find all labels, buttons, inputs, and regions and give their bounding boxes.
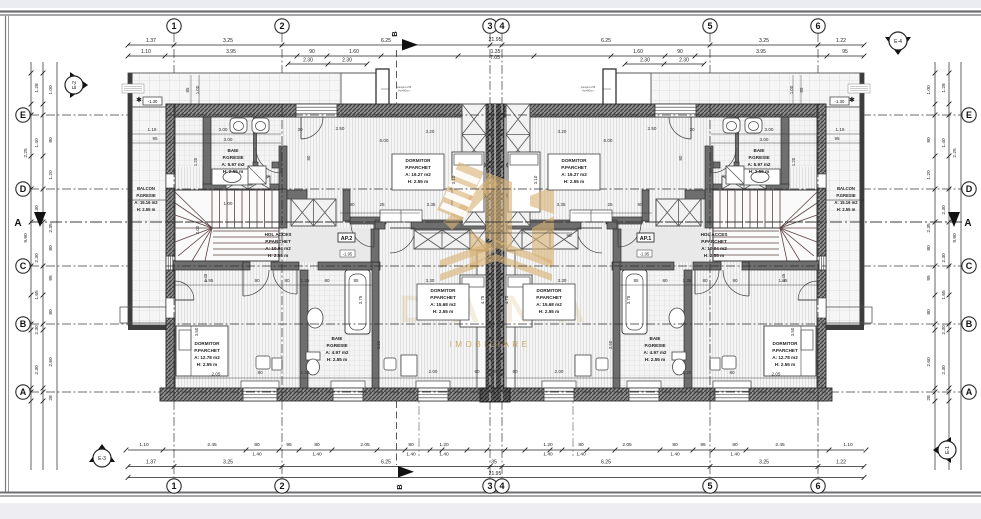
svg-text:95: 95 [152,136,158,141]
svg-text:3.95: 3.95 [756,49,766,55]
svg-text:2.00: 2.00 [429,369,438,374]
svg-text:2.00: 2.00 [555,369,564,374]
svg-text:H: 2.55 m: H: 2.55 m [645,357,665,362]
svg-text:1.40: 1.40 [312,451,322,457]
svg-text:A: A [14,218,21,229]
svg-text:80: 80 [662,278,668,283]
svg-text:90: 90 [637,202,643,207]
svg-text:2.35: 2.35 [926,223,932,233]
svg-text:A: 4.97 m2: A: 4.97 m2 [326,350,349,355]
svg-text:90: 90 [349,202,355,207]
svg-text:parapet c/45: parapet c/45 [581,85,596,89]
svg-text:3.50: 3.50 [194,327,199,336]
svg-text:2.05: 2.05 [772,372,781,377]
svg-text:1.20: 1.20 [543,442,553,448]
svg-text:2: 2 [279,21,284,31]
svg-text:P.GRESIE: P.GRESIE [644,343,665,348]
svg-text:80: 80 [926,245,932,251]
svg-text:P.GRESIE: P.GRESIE [136,193,155,198]
svg-text:3.35: 3.35 [427,202,436,207]
svg-text:80: 80 [284,278,290,283]
svg-text:1.00: 1.00 [926,85,932,95]
svg-text:80: 80 [926,309,932,315]
svg-text:80: 80 [408,442,414,448]
svg-text:1.19: 1.19 [148,127,157,132]
svg-text:4.75: 4.75 [480,295,485,304]
svg-text:H: 2.55 m: H: 2.55 m [564,179,584,184]
svg-text:6.25: 6.25 [381,38,391,44]
svg-text:DORMITOR: DORMITOR [406,158,432,163]
svg-text:85: 85 [633,278,639,283]
svg-text:3.30: 3.30 [426,278,435,283]
svg-text:85: 85 [799,87,804,92]
svg-text:A: 10.04 m2: A: 10.04 m2 [701,246,727,251]
svg-text:1.20: 1.20 [926,170,932,180]
svg-text:3.10: 3.10 [451,175,456,184]
svg-text:H: 2.55 m: H: 2.55 m [704,253,724,258]
svg-text:2.05: 2.05 [622,442,632,448]
svg-text:80: 80 [702,278,708,283]
svg-text:H: 2.55 m: H: 2.55 m [327,357,347,362]
svg-text:B: B [966,319,973,329]
svg-text:BALCON: BALCON [137,186,155,191]
svg-text:H: 2.55 m: H: 2.55 m [223,169,243,174]
svg-text:E-1: E-1 [945,446,951,454]
svg-text:A: A [966,387,973,397]
svg-text:1.45: 1.45 [203,273,208,282]
svg-text:HOL ACCES: HOL ACCES [265,232,292,237]
svg-text:5: 5 [707,21,712,31]
svg-text:1.45: 1.45 [781,273,786,282]
svg-text:A: A [20,387,27,397]
svg-text:-1.30: -1.30 [148,99,158,104]
svg-text:DORMITOR: DORMITOR [195,341,221,346]
svg-text:1.20: 1.20 [301,370,310,375]
svg-text:D: D [966,184,973,194]
svg-text:H: 2.55 m: H: 2.55 m [749,169,769,174]
svg-text:2.30: 2.30 [679,58,689,64]
svg-text:80: 80 [678,155,683,160]
svg-text:1.22: 1.22 [836,460,846,466]
svg-text:DORMITOR: DORMITOR [562,158,588,163]
svg-text:P.GRESIE: P.GRESIE [836,193,855,198]
svg-text:1.20: 1.20 [439,442,449,448]
svg-text:E: E [20,110,26,120]
svg-text:BAIE: BAIE [650,336,661,341]
svg-text:1.40: 1.40 [406,451,416,457]
svg-text:3.00: 3.00 [765,127,774,132]
svg-text:3.50: 3.50 [376,340,381,349]
svg-text:80: 80 [732,442,738,448]
svg-text:B: B [390,31,399,37]
svg-text:H: 2.55 m: H: 2.55 m [837,207,856,212]
svg-text:1.40: 1.40 [252,451,262,457]
svg-text:1.10: 1.10 [843,442,853,448]
svg-text:A: 5.97 m2: A: 5.97 m2 [222,162,245,167]
svg-text:A: 15.68 m2: A: 15.68 m2 [536,302,562,307]
svg-text:1.00: 1.00 [224,201,233,206]
svg-text:BAIE: BAIE [754,148,765,153]
svg-text:80: 80 [254,442,260,448]
svg-text:H: 2.55 m: H: 2.55 m [539,309,559,314]
svg-text:25: 25 [379,202,385,207]
svg-text:2.45: 2.45 [207,442,217,448]
svg-text:3.25: 3.25 [759,460,769,466]
svg-text:E-4: E-4 [894,39,902,45]
svg-text:1.35: 1.35 [301,278,310,283]
svg-text:A: A [964,218,971,229]
svg-text:B: B [20,319,27,329]
svg-text:1.20: 1.20 [683,370,692,375]
svg-text:25: 25 [607,202,613,207]
svg-text:80: 80 [48,245,54,251]
svg-text:A: 12.78 m2: A: 12.78 m2 [772,355,798,360]
svg-text:3.50: 3.50 [608,340,613,349]
svg-text:3.20: 3.20 [426,129,435,134]
svg-text:6: 6 [815,21,820,31]
svg-text:3: 3 [487,21,492,31]
svg-text:1.60: 1.60 [633,49,643,55]
svg-text:2.30: 2.30 [941,253,947,263]
svg-text:-1.95: -1.95 [343,252,353,257]
svg-text:2.30: 2.30 [941,365,947,375]
svg-text:6.25: 6.25 [601,38,611,44]
svg-text:2.30: 2.30 [34,253,40,263]
svg-text:parapet c/45: parapet c/45 [397,85,412,89]
svg-text:3.25: 3.25 [759,38,769,44]
svg-text:2.35: 2.35 [48,223,54,233]
svg-text:21.95: 21.95 [489,37,502,43]
svg-text:Hp=90cm: Hp=90cm [398,89,409,93]
svg-text:1.40: 1.40 [543,451,553,457]
svg-text:85: 85 [353,278,359,283]
svg-text:3.10: 3.10 [533,175,538,184]
svg-text:1.28: 1.28 [34,83,40,93]
svg-text:90: 90 [254,278,260,283]
svg-text:30: 30 [297,127,303,132]
svg-text:Hp=90cm: Hp=90cm [582,89,593,93]
svg-text:B: B [395,484,404,490]
svg-text:2.30: 2.30 [342,58,352,64]
svg-text:80: 80 [578,442,584,448]
svg-text:90: 90 [732,278,738,283]
svg-text:3.25: 3.25 [223,38,233,44]
svg-text:A: 15.16 m2: A: 15.16 m2 [834,200,858,205]
svg-text:1.40: 1.40 [941,138,947,148]
svg-text:A: 19.27 m2: A: 19.27 m2 [405,172,431,177]
svg-text:1.37: 1.37 [146,38,156,44]
svg-text:1.40: 1.40 [34,138,40,148]
svg-text:2.30: 2.30 [34,365,40,375]
svg-text:E-3: E-3 [98,456,106,462]
svg-text:1: 1 [171,21,176,31]
svg-text:P.GRESIE: P.GRESIE [326,343,347,348]
svg-text:DORMITOR: DORMITOR [773,341,799,346]
svg-text:A: 12.78 m2: A: 12.78 m2 [194,355,220,360]
svg-text:1.37: 1.37 [146,460,156,466]
svg-text:95: 95 [48,275,54,281]
svg-text:2: 2 [279,481,284,491]
svg-text:3.20: 3.20 [558,129,567,134]
svg-text:AP.1: AP.1 [640,236,652,242]
svg-text:BAIE: BAIE [332,336,343,341]
svg-text:28: 28 [48,395,54,401]
svg-text:A: 15.68 m2: A: 15.68 m2 [430,302,456,307]
svg-text:7.05: 7.05 [490,55,500,61]
svg-text:AP.2: AP.2 [341,236,353,242]
svg-text:P.GRESIE: P.GRESIE [748,155,769,160]
svg-text:28: 28 [926,395,932,401]
svg-text:2.25: 2.25 [952,148,958,158]
svg-text:DORMITOR: DORMITOR [537,288,563,293]
svg-text:85: 85 [185,87,190,92]
svg-text:35: 35 [491,460,497,466]
svg-text:P.PARCHET: P.PARCHET [561,165,587,170]
svg-text:H: 2.55 m: H: 2.55 m [137,207,156,212]
svg-text:D: D [20,184,27,194]
svg-text:21.95: 21.95 [489,471,502,477]
svg-text:A: 15.16 m2: A: 15.16 m2 [134,200,158,205]
svg-text:2.45: 2.45 [775,442,785,448]
svg-text:3.00: 3.00 [760,137,769,142]
svg-text:2.30: 2.30 [941,205,947,215]
svg-text:3.00: 3.00 [224,137,233,142]
svg-text:5: 5 [707,481,712,491]
svg-text:80: 80 [324,278,330,283]
svg-text:1.40: 1.40 [670,451,680,457]
svg-text:3.75: 3.75 [358,295,363,304]
svg-text:2.60: 2.60 [48,357,54,367]
svg-text:1.10: 1.10 [141,49,151,55]
svg-text:A: 5.97 m2: A: 5.97 m2 [748,162,771,167]
svg-text:80: 80 [729,370,735,375]
svg-text:4.75: 4.75 [504,295,509,304]
svg-text:1.40: 1.40 [576,451,586,457]
svg-text:90: 90 [677,49,683,55]
svg-text:P.PARCHET: P.PARCHET [430,295,456,300]
svg-text:2.25: 2.25 [23,148,29,158]
svg-text:✱: ✱ [136,96,142,104]
svg-text:4: 4 [499,481,504,491]
svg-text:H: 2.55 m: H: 2.55 m [197,362,217,367]
svg-text:P.PARCHET: P.PARCHET [772,348,798,353]
svg-text:1.40: 1.40 [730,451,740,457]
svg-text:1.35: 1.35 [683,278,692,283]
svg-text:HOL ACCES: HOL ACCES [701,232,728,237]
svg-text:2.30: 2.30 [34,325,40,335]
svg-text:1: 1 [171,481,176,491]
svg-text:1.19: 1.19 [836,127,845,132]
svg-text:1.28: 1.28 [941,83,947,93]
svg-text:80: 80 [48,309,54,315]
svg-text:H: 2.55 m: H: 2.55 m [268,253,288,258]
svg-text:1.20: 1.20 [48,170,54,180]
svg-text:BAIE: BAIE [228,148,239,153]
svg-text:80: 80 [672,442,678,448]
svg-text:-1.95: -1.95 [640,252,650,257]
svg-text:3.25: 3.25 [223,460,233,466]
svg-text:35: 35 [492,369,498,374]
svg-text:H: 2.55 m: H: 2.55 m [408,179,428,184]
svg-text:6.25: 6.25 [381,460,391,466]
svg-text:P.GRESIE: P.GRESIE [222,155,243,160]
svg-text:95: 95 [834,136,840,141]
svg-text:95: 95 [700,442,706,448]
svg-text:E-2: E-2 [72,81,78,89]
svg-text:2.30: 2.30 [640,58,650,64]
svg-text:9.90: 9.90 [952,233,958,243]
svg-text:30: 30 [689,127,695,132]
svg-text:1.00: 1.00 [48,85,54,95]
svg-text:6.25: 6.25 [601,460,611,466]
svg-text:60: 60 [474,369,480,374]
svg-text:1.65: 1.65 [941,290,947,300]
svg-text:3.50: 3.50 [790,327,795,336]
svg-text:80: 80 [926,137,932,143]
svg-text:-1.30: -1.30 [835,99,845,104]
svg-text:2.00: 2.00 [195,225,200,234]
svg-text:A: 10.04 m2: A: 10.04 m2 [265,246,291,251]
svg-text:4: 4 [499,21,504,31]
svg-text:95: 95 [842,49,848,55]
svg-text:2.05: 2.05 [212,372,221,377]
svg-text:C: C [966,261,973,271]
svg-text:A: 19.27 m2: A: 19.27 m2 [561,172,587,177]
svg-text:3.35: 3.35 [557,202,566,207]
svg-text:95: 95 [286,442,292,448]
svg-text:6: 6 [815,481,820,491]
svg-text:1.00: 1.00 [789,85,794,94]
svg-text:2.30: 2.30 [941,325,947,335]
svg-text:P.PARCHET: P.PARCHET [536,295,562,300]
svg-text:3.30: 3.30 [558,278,567,283]
svg-text:E: E [966,110,972,120]
svg-text:80: 80 [48,137,54,143]
svg-text:80: 80 [257,370,263,375]
svg-text:H: 2.55 m: H: 2.55 m [775,362,795,367]
svg-text:1.20: 1.20 [193,157,198,166]
svg-text:BALCON: BALCON [837,186,855,191]
svg-text:1.60: 1.60 [349,49,359,55]
svg-text:1.22: 1.22 [836,38,846,44]
svg-text:2.60: 2.60 [926,357,932,367]
svg-text:P.PARCHET: P.PARCHET [265,239,291,244]
svg-text:2.50: 2.50 [336,126,345,131]
svg-text:95: 95 [926,275,932,281]
svg-text:1.40: 1.40 [439,451,449,457]
svg-text:1.20: 1.20 [791,157,796,166]
svg-text:60: 60 [512,369,518,374]
svg-text:80: 80 [314,442,320,448]
svg-text:3.95: 3.95 [226,49,236,55]
svg-text:3: 3 [487,481,492,491]
svg-text:90: 90 [566,233,572,238]
svg-text:2.50: 2.50 [648,126,657,131]
svg-text:P.PARCHET: P.PARCHET [405,165,431,170]
svg-text:P.PARCHET: P.PARCHET [194,348,220,353]
svg-text:6.00: 6.00 [380,138,389,143]
svg-text:✱: ✱ [849,96,855,104]
svg-text:3.75: 3.75 [626,295,631,304]
svg-text:1.65: 1.65 [34,290,40,300]
svg-text:6.00: 6.00 [604,138,613,143]
svg-text:A: 4.97 m2: A: 4.97 m2 [644,350,667,355]
svg-text:C: C [20,261,27,271]
svg-text:1.10: 1.10 [139,442,149,448]
svg-text:2.05: 2.05 [360,442,370,448]
svg-text:H: 2.55 m: H: 2.55 m [433,309,453,314]
svg-text:90: 90 [309,49,315,55]
svg-text:2.30: 2.30 [303,58,313,64]
svg-text:P.PARCHET: P.PARCHET [701,239,727,244]
svg-text:80: 80 [306,155,311,160]
svg-text:DORMITOR: DORMITOR [431,288,457,293]
svg-text:3.00: 3.00 [219,127,228,132]
svg-text:1.00: 1.00 [195,85,200,94]
svg-text:9.90: 9.90 [23,233,29,243]
